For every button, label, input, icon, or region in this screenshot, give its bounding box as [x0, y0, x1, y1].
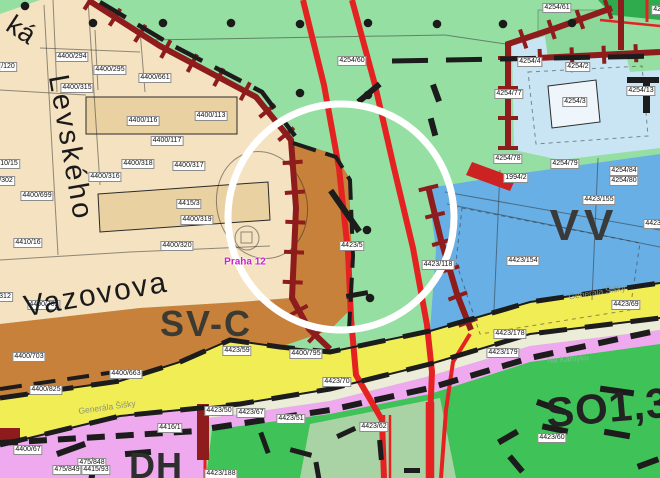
- map-geometry: [0, 0, 660, 478]
- zoning-map[interactable]: Praha 12 4400/294/1204400/2954400/315440…: [0, 0, 660, 478]
